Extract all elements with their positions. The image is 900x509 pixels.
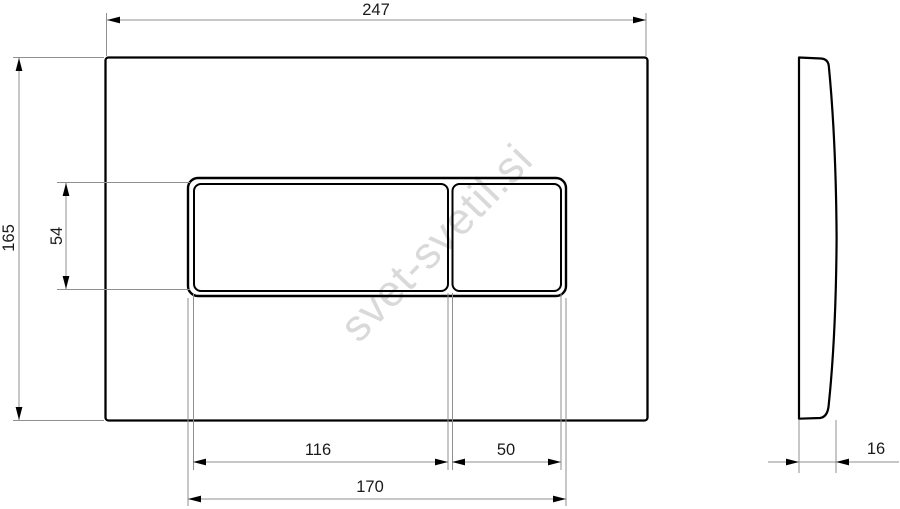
dimension-label-plate-height: 165 — [0, 224, 18, 252]
dimension-label-large-button-width: 116 — [305, 441, 331, 459]
side-view — [799, 58, 837, 419]
arrowhead-right — [836, 459, 849, 466]
arrowhead-left — [188, 496, 201, 503]
dimension-label-plate-thickness: 16 — [867, 440, 885, 458]
arrowhead-bottom — [16, 407, 23, 420]
arrowhead-top — [16, 58, 23, 71]
technical-drawing-page: svet-svetil.si 247 165 — [0, 0, 900, 509]
side-profile — [799, 58, 837, 419]
arrowhead-left — [193, 459, 206, 466]
arrowhead-right — [548, 459, 561, 466]
arrowhead-right — [553, 496, 566, 503]
dimension-label-opening-width: 170 — [356, 478, 384, 496]
arrowhead-left — [786, 459, 799, 466]
arrowhead-right — [435, 459, 448, 466]
arrowhead-bottom — [63, 276, 70, 289]
flush-plate-technical-drawing: svet-svetil.si 247 165 — [0, 0, 900, 509]
arrowhead-right — [633, 17, 646, 24]
dimension-plate-thickness: 16 — [768, 420, 899, 473]
dimension-label-plate-width: 247 — [362, 1, 390, 19]
arrowhead-left — [452, 459, 465, 466]
arrowhead-top — [63, 183, 70, 196]
dimension-label-small-button-width: 50 — [497, 441, 515, 459]
arrowhead-left — [107, 17, 120, 24]
dimension-plate-width: 247 — [107, 1, 647, 56]
dimension-label-button-height: 54 — [48, 227, 66, 245]
